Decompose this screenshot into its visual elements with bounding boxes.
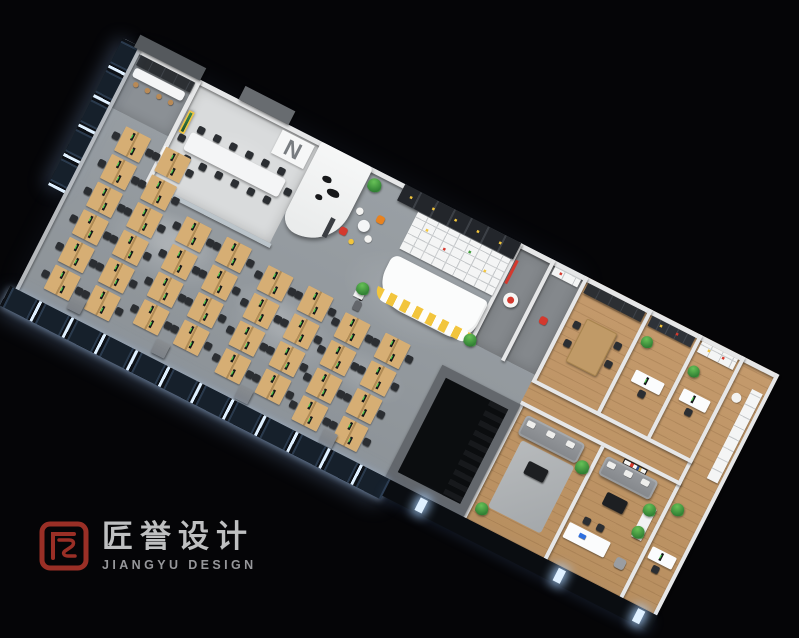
office-chair	[239, 297, 249, 307]
office-chair	[111, 131, 121, 141]
monitor-icon	[307, 416, 313, 424]
monitor-icon	[203, 298, 209, 306]
monitor-icon	[59, 285, 65, 293]
monitor-icon	[177, 265, 183, 273]
monitor-icon	[335, 346, 341, 354]
monitor-icon	[298, 334, 304, 342]
monitor-icon	[258, 314, 264, 322]
office-chair	[330, 317, 340, 327]
monitor-icon	[272, 272, 278, 280]
monitor-icon	[270, 375, 276, 383]
office-chair	[97, 158, 107, 168]
monitor-icon	[390, 339, 396, 347]
monitor-icon	[335, 361, 341, 369]
office-chair	[390, 382, 400, 392]
monitor-icon	[88, 230, 94, 238]
glowing-doorway	[414, 497, 427, 513]
monitor-icon	[313, 292, 319, 300]
office-chair	[41, 269, 51, 279]
monitor-icon	[116, 160, 122, 168]
office-chair	[225, 325, 235, 335]
monitor-icon	[230, 354, 236, 362]
office-chair	[203, 341, 213, 351]
sofa-pillow	[526, 420, 536, 429]
office-chair	[404, 354, 414, 364]
monitor-icon	[128, 251, 134, 259]
monitor-icon	[361, 409, 367, 417]
office-chair	[55, 241, 65, 251]
sofa-pillow	[606, 461, 616, 470]
monitor-icon	[142, 208, 148, 216]
office-chair	[279, 318, 289, 328]
glowing-doorway	[553, 568, 566, 584]
book-decor	[675, 332, 678, 335]
office-chair	[302, 372, 312, 382]
monitor-icon	[60, 271, 66, 279]
office-chair	[299, 362, 309, 372]
book-decor	[722, 357, 725, 360]
monitor-icon	[298, 320, 304, 328]
monitor-icon	[312, 307, 318, 315]
monitor-icon	[189, 326, 195, 334]
monitor-icon	[156, 181, 162, 189]
brand-name-en: JIANGYU DESIGN	[102, 558, 257, 572]
monitor-icon	[170, 168, 176, 176]
office-chair	[69, 214, 79, 224]
monitor-icon	[231, 258, 237, 266]
office-chair	[170, 324, 180, 334]
office-chair	[288, 400, 298, 410]
office-chair	[362, 437, 372, 447]
monitor-icon	[114, 278, 120, 286]
monitor-icon	[203, 313, 209, 321]
monitor-icon	[116, 175, 122, 183]
office-chair	[313, 335, 323, 345]
sofa-pillow	[623, 469, 633, 478]
office-chair	[245, 258, 255, 268]
office-chair	[327, 307, 337, 317]
office-chair	[231, 286, 241, 296]
book-decor	[707, 349, 710, 352]
monitor-icon	[74, 258, 80, 266]
monitor-icon	[102, 202, 108, 210]
office-chair	[123, 206, 133, 216]
brand-name-cn: 匠誉设计	[102, 520, 257, 556]
office-chair	[137, 179, 147, 189]
monitor-icon	[244, 341, 250, 349]
sofa-pillow	[546, 430, 556, 439]
monitor-icon	[349, 319, 355, 327]
office-chair	[142, 251, 152, 261]
office-chair	[184, 168, 194, 178]
monitor-icon	[217, 285, 223, 293]
office-chair	[342, 392, 352, 402]
office-chair	[253, 270, 263, 280]
monitor-icon	[307, 402, 313, 410]
office-chair	[376, 409, 386, 419]
monitor-icon	[284, 347, 290, 355]
monitor-icon	[100, 306, 106, 314]
sofa-pillow	[640, 478, 650, 487]
monitor-icon	[130, 147, 136, 155]
office-chair	[109, 234, 119, 244]
monitor-icon	[149, 305, 155, 313]
monitor-icon	[74, 243, 80, 251]
office-chair	[212, 241, 222, 251]
office-chair	[170, 196, 180, 206]
monitor-icon	[162, 292, 168, 300]
monitor-icon	[284, 362, 290, 370]
monitor-icon	[347, 422, 353, 430]
office-chair	[184, 296, 194, 306]
monitor-icon	[217, 271, 223, 279]
logo-icon	[38, 520, 90, 572]
monitor-icon	[191, 223, 197, 231]
monitor-icon	[231, 243, 237, 251]
monitor-icon	[244, 327, 250, 335]
monitor-icon	[188, 340, 194, 348]
monitor-icon	[142, 223, 148, 231]
office-chair	[151, 151, 161, 161]
office-chair	[158, 248, 168, 258]
office-chair	[316, 344, 326, 354]
office-chair	[211, 352, 221, 362]
monitor-icon	[347, 436, 353, 444]
monitor-icon	[130, 133, 136, 141]
monitor-icon	[389, 354, 395, 362]
monitor-icon	[148, 320, 154, 328]
monitor-icon	[114, 264, 120, 272]
office-chair	[251, 373, 261, 383]
office-chair	[217, 313, 227, 323]
office-chair	[128, 279, 138, 289]
office-chair	[356, 365, 366, 375]
monitor-icon	[230, 369, 236, 377]
office-chair	[371, 337, 381, 347]
office-chair	[172, 221, 182, 231]
monitor-icon	[375, 367, 381, 375]
monitor-icon	[270, 389, 276, 397]
monitor-icon	[321, 388, 327, 396]
brand-logo: 匠誉设计 JIANGYU DESIGN	[38, 520, 257, 572]
office-chair	[144, 276, 154, 286]
office-chair	[198, 269, 208, 279]
monitor-icon	[163, 278, 169, 286]
office-chair	[328, 420, 338, 430]
monitor-icon	[102, 188, 108, 196]
office-chair	[156, 223, 166, 233]
glowing-doorway	[632, 608, 645, 624]
office-chair	[95, 262, 105, 272]
monitor-icon	[156, 195, 162, 203]
monitor-icon	[177, 250, 183, 258]
monitor-icon	[100, 291, 106, 299]
office-chair	[294, 290, 304, 300]
office-chair	[130, 304, 140, 314]
monitor-icon	[321, 374, 327, 382]
brand-logo-text: 匠誉设计 JIANGYU DESIGN	[102, 520, 257, 572]
monitor-icon	[375, 381, 381, 389]
sofa-pillow	[565, 440, 575, 449]
monitor-icon	[272, 286, 278, 294]
monitor-icon	[349, 333, 355, 341]
monitor-icon	[170, 153, 176, 161]
office-chair	[83, 186, 93, 196]
monitor-icon	[361, 394, 367, 402]
monitor-icon	[88, 216, 94, 224]
monitor-icon	[128, 236, 134, 244]
office-chair	[81, 289, 91, 299]
book-decor	[659, 324, 662, 327]
office-chair	[114, 306, 124, 316]
monitor-icon	[191, 237, 197, 245]
render-canvas: N	[0, 0, 799, 638]
office-chair	[265, 345, 275, 355]
office-chair	[285, 390, 295, 400]
monitor-icon	[258, 299, 264, 307]
